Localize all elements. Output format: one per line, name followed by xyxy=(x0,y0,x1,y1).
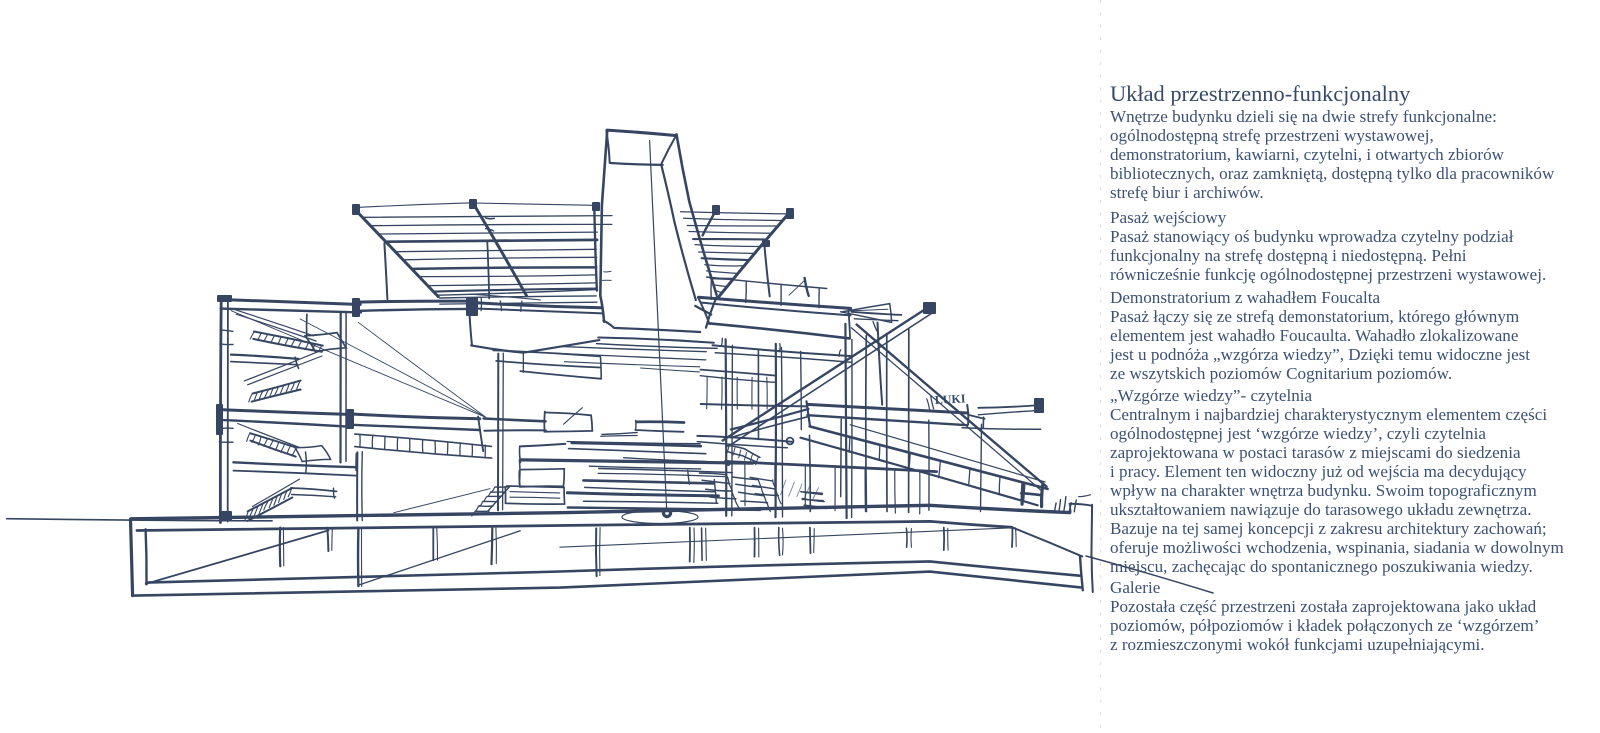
svg-text:LUKI: LUKI xyxy=(934,391,966,407)
